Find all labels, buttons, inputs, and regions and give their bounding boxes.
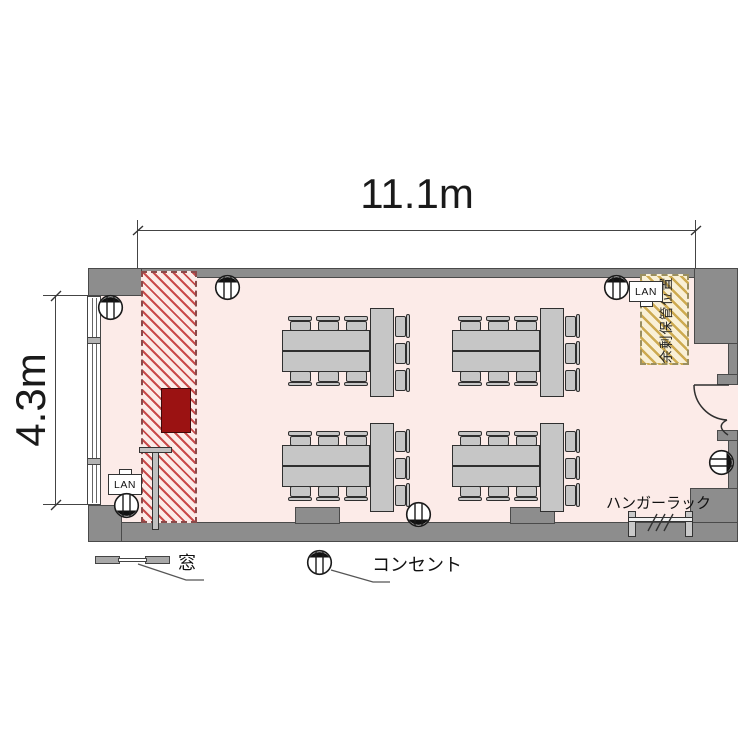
width-dimension-line xyxy=(138,230,696,231)
meeting-tables xyxy=(452,330,540,372)
chair-seat xyxy=(565,370,576,391)
legend-outlet-label: コンセント xyxy=(372,551,462,577)
chair xyxy=(395,429,411,453)
legend-window-symbol xyxy=(145,556,170,564)
chair-backrest xyxy=(344,497,368,502)
chair-seat xyxy=(318,371,339,382)
table-divider xyxy=(453,465,539,467)
chair-backrest xyxy=(514,431,538,436)
hanger-rack-bar xyxy=(628,517,693,522)
chair-backrest xyxy=(288,316,312,321)
chair xyxy=(565,341,581,365)
chair-seat xyxy=(565,343,576,364)
chair-backrest xyxy=(316,382,340,387)
window-mullion xyxy=(87,458,101,465)
door-jamb-top xyxy=(717,374,738,385)
chair-backrest xyxy=(458,497,482,502)
chair xyxy=(565,368,581,392)
chair-backrest xyxy=(576,341,581,365)
chair-seat xyxy=(460,321,481,332)
chair xyxy=(395,341,411,365)
chair xyxy=(458,486,482,501)
chair-seat xyxy=(290,436,311,447)
height-dimension-line xyxy=(55,296,56,505)
chair-seat xyxy=(395,343,406,364)
chair xyxy=(344,486,368,501)
table-group xyxy=(282,423,411,513)
chair-seat xyxy=(488,436,509,447)
legend-window-symbol xyxy=(95,556,120,564)
chair-seat xyxy=(516,371,537,382)
chair-seat xyxy=(290,486,311,497)
chair-seat xyxy=(488,321,509,332)
chair xyxy=(344,431,368,446)
chair-backrest xyxy=(316,497,340,502)
chair xyxy=(288,431,312,446)
chair xyxy=(565,429,581,453)
wall-right-upper xyxy=(728,343,738,375)
chair-seat xyxy=(346,486,367,497)
floorplan-page: 11.1m 4.3m 余剰保管位置 LAN LAN ハンガーラック xyxy=(0,0,750,750)
hanger-rack-label: ハンガーラック xyxy=(606,492,711,513)
legend-window-symbol-mid xyxy=(118,558,147,562)
table-divider xyxy=(283,350,369,352)
chair-seat xyxy=(488,486,509,497)
chair xyxy=(395,368,411,392)
chair-seat xyxy=(460,436,481,447)
chair-seat xyxy=(565,485,576,506)
chair-backrest xyxy=(486,431,510,436)
chair xyxy=(395,456,411,480)
outlet-symbol xyxy=(97,294,124,321)
chair-backrest xyxy=(514,316,538,321)
chair xyxy=(514,371,538,386)
legend-window-label: 窓 xyxy=(178,549,196,575)
height-dimension-label: 4.3m xyxy=(7,330,51,470)
table-group xyxy=(282,308,411,398)
chair-seat xyxy=(346,371,367,382)
chair-seat xyxy=(318,486,339,497)
legend-leader-lines xyxy=(138,564,390,582)
chair-backrest xyxy=(406,456,411,480)
end-table xyxy=(540,423,564,512)
chair-backrest xyxy=(406,429,411,453)
chair-backrest xyxy=(458,316,482,321)
chair-seat xyxy=(488,371,509,382)
chair-seat xyxy=(346,436,367,447)
table-group xyxy=(452,423,581,513)
chair-backrest xyxy=(316,316,340,321)
chair-seat xyxy=(565,431,576,452)
chair-seat xyxy=(318,436,339,447)
chair xyxy=(316,431,340,446)
chair-backrest xyxy=(406,341,411,365)
chair-backrest xyxy=(458,431,482,436)
window-pane-line xyxy=(96,298,97,503)
hanger-rack-post xyxy=(685,511,693,537)
chair xyxy=(514,486,538,501)
chair-backrest xyxy=(576,483,581,507)
chair-seat xyxy=(516,321,537,332)
outlet-symbol xyxy=(405,501,432,528)
chair xyxy=(316,371,340,386)
chair-seat xyxy=(290,321,311,332)
hanger-rack-post xyxy=(628,511,636,537)
chair xyxy=(486,316,510,331)
meeting-tables xyxy=(452,445,540,487)
chair-seat xyxy=(395,316,406,337)
chair-backrest xyxy=(576,456,581,480)
outlet-symbol xyxy=(214,274,241,301)
chair-backrest xyxy=(486,382,510,387)
outlet-symbol xyxy=(708,449,735,476)
end-table xyxy=(370,423,394,512)
chair-backrest xyxy=(344,431,368,436)
chair xyxy=(565,314,581,338)
chair xyxy=(514,431,538,446)
chair-backrest xyxy=(288,431,312,436)
chair-backrest xyxy=(576,429,581,453)
chair xyxy=(458,371,482,386)
outlet-symbol xyxy=(603,274,630,301)
chair-backrest xyxy=(344,382,368,387)
chair xyxy=(565,483,581,507)
chair-seat xyxy=(346,321,367,332)
chair xyxy=(486,371,510,386)
chair xyxy=(486,486,510,501)
width-extension-line-right xyxy=(695,220,696,270)
window-pane-line xyxy=(92,298,93,503)
table-divider xyxy=(453,350,539,352)
wall-corner-top-right xyxy=(694,268,738,344)
window-mullion xyxy=(87,337,101,344)
width-dimension-label: 11.1m xyxy=(317,170,517,218)
lan-port-right: LAN xyxy=(629,281,663,302)
chair-seat xyxy=(516,486,537,497)
chair-backrest xyxy=(576,314,581,338)
chair-backrest xyxy=(576,368,581,392)
chair-seat xyxy=(318,321,339,332)
end-table xyxy=(370,308,394,397)
chair xyxy=(486,431,510,446)
table-divider xyxy=(283,465,369,467)
chair xyxy=(316,486,340,501)
chair-seat xyxy=(516,436,537,447)
chair-backrest xyxy=(514,497,538,502)
podium xyxy=(161,388,191,433)
end-table xyxy=(540,308,564,397)
chair xyxy=(288,486,312,501)
chair-backrest xyxy=(288,382,312,387)
outlet-symbol xyxy=(113,492,140,519)
screen-stand-pole xyxy=(152,452,159,530)
chair-backrest xyxy=(406,314,411,338)
chair-seat xyxy=(460,371,481,382)
chair xyxy=(344,316,368,331)
chair-backrest xyxy=(344,316,368,321)
table-group xyxy=(452,308,581,398)
chair-backrest xyxy=(486,316,510,321)
chair-seat xyxy=(395,370,406,391)
chair-seat xyxy=(290,371,311,382)
height-extension-line-bottom xyxy=(43,504,89,505)
chair-backrest xyxy=(514,382,538,387)
chair xyxy=(514,316,538,331)
chair-backrest xyxy=(288,497,312,502)
chair xyxy=(288,371,312,386)
chair xyxy=(458,316,482,331)
chair-backrest xyxy=(406,368,411,392)
window-left xyxy=(87,296,101,505)
chair-seat xyxy=(395,431,406,452)
chair-seat xyxy=(460,486,481,497)
chair xyxy=(316,316,340,331)
chair-seat xyxy=(565,316,576,337)
chair xyxy=(565,456,581,480)
chair-backrest xyxy=(316,431,340,436)
chair xyxy=(395,314,411,338)
height-extension-line-top xyxy=(43,295,89,296)
wall-corner-top-left xyxy=(88,268,142,296)
chair xyxy=(288,316,312,331)
chair-backrest xyxy=(458,382,482,387)
chair-seat xyxy=(395,458,406,479)
meeting-tables xyxy=(282,445,370,487)
chair-seat xyxy=(565,458,576,479)
chair xyxy=(344,371,368,386)
meeting-tables xyxy=(282,330,370,372)
chair xyxy=(458,431,482,446)
legend-outlet-symbol xyxy=(306,549,333,576)
width-extension-line-left xyxy=(137,220,138,270)
chair-backrest xyxy=(486,497,510,502)
